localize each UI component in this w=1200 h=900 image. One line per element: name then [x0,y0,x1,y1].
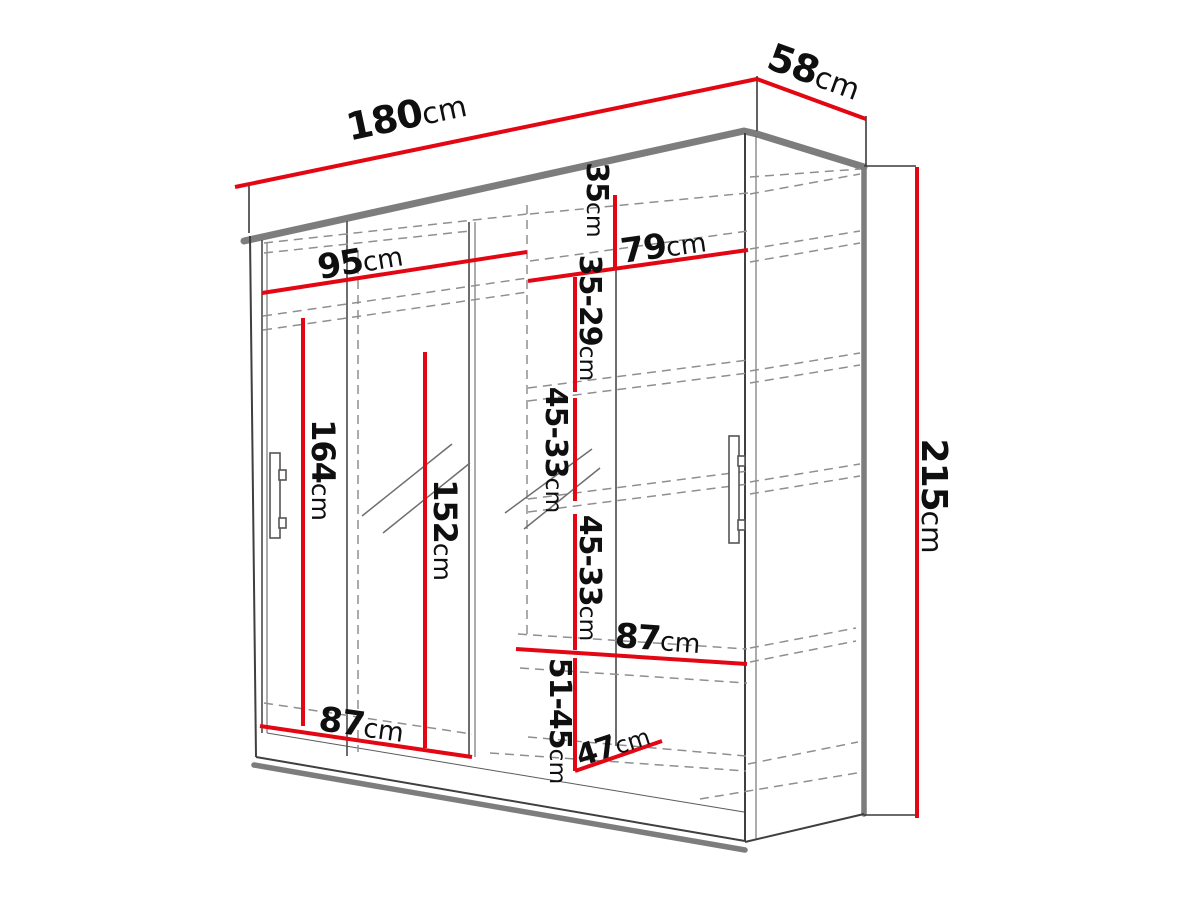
left-handle-tab-top [279,470,286,480]
top-front-edge [244,131,864,241]
shelf2-back [528,360,748,388]
rec-floor-2 [700,773,857,799]
dimension-labels: 180cm 58cm 215cm 95cm 79cm 35cm 35-29cm … [304,35,954,785]
left-front-edge [250,236,256,757]
label-top-right-shelf-height: 35cm [579,162,614,237]
right-handle-tab-top [738,456,745,466]
label-middle-shelf-spacing-1: 45-33cm [538,387,573,514]
rec-ceiling-1 [750,174,860,194]
diagram-canvas: 180cm 58cm 215cm 95cm 79cm 35cm 35-29cm … [0,0,1200,900]
rec-shelf4-a [750,628,856,648]
rec-ceiling-2 [750,169,860,177]
label-middle-shelf-spacing-2: 45-33cm [572,515,607,642]
right-handle-tab-bottom [738,520,745,530]
label-total-height: 215cm [913,439,954,554]
side-bottom-edge [745,814,864,842]
label-right-section-width: 79cm [618,220,708,272]
left-door-handle [270,453,286,538]
left-handle-tab-bottom [279,518,286,528]
label-left-interior-height: 164cm [304,419,342,521]
label-lower-shelf-spacing: 51-45cm [542,658,577,785]
bottom-front-edge [256,757,745,841]
ceiling-dash-right [530,193,748,214]
label-upper-shelf-spacing: 35-29cm [572,255,607,382]
plinth-bottom-edge [254,765,745,850]
label-bottom-shelf-depth: 47cm [572,718,655,775]
wardrobe-dimension-diagram: 180cm 58cm 215cm 95cm 79cm 35cm 35-29cm … [0,0,1200,900]
rec-floor-1 [748,742,858,764]
right-door-handle [729,436,745,543]
rec-shelf4-b [750,641,856,662]
label-total-depth: 58cm [762,35,867,109]
label-right-shelf-width: 87cm [614,616,702,662]
label-total-width: 180cm [342,81,470,149]
dim-line-total-width-180 [235,79,757,187]
label-mirror-height: 152cm [426,479,464,581]
